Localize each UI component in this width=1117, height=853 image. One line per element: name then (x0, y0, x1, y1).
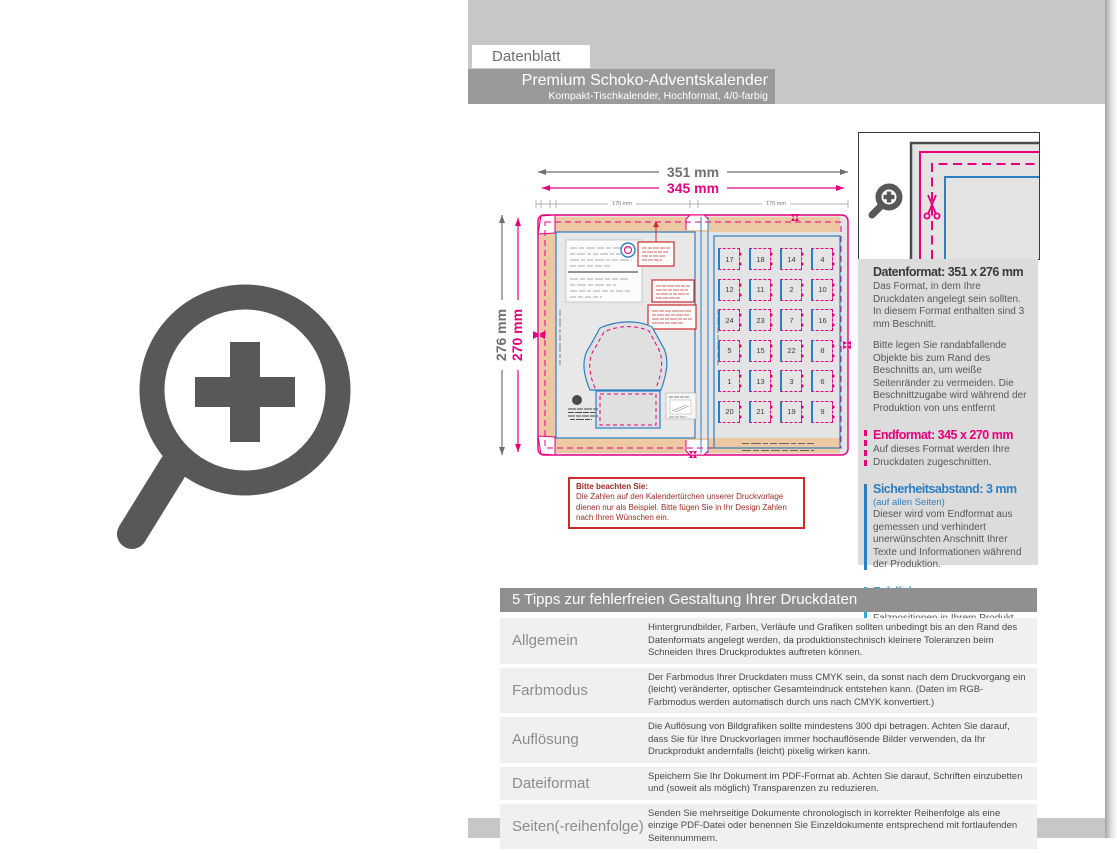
datenformat-body2: Bitte legen Sie randabfallende Objekte b… (873, 340, 1030, 415)
section-sicherheitsabstand: Sicherheitsabstand: 3 mm (auf allen Seit… (873, 482, 1030, 572)
tip-row-dateiformat: Dateiformat Speichern Sie Ihr Dokument i… (500, 767, 1037, 800)
calendar-door: 11 (749, 279, 771, 301)
info-panel: Datenformat: 351 x 276 mm Das Format, in… (858, 259, 1038, 565)
tip-row-aufloesung: Auflösung Die Auflösung von Bildgrafiken… (500, 717, 1037, 763)
corner-detail-box (858, 132, 1040, 260)
calendar-door: 23 (749, 309, 771, 331)
calendar-door: 19 (780, 401, 802, 423)
sicherheitsabstand-indicator-bar (864, 484, 867, 570)
section-datenformat: Datenformat: 351 x 276 mm Das Format, in… (873, 265, 1030, 415)
die-cut-diagram: 351 mm 345 mm 170 mm 170 mm 276 mm 270 m… (480, 160, 855, 515)
calendar-door: 18 (749, 248, 771, 270)
tips-table: 5 Tipps zur fehlerfreien Gestaltung Ihre… (500, 588, 1037, 853)
calendar-door: 17 (718, 248, 740, 270)
tip-label: Auflösung (500, 721, 648, 759)
tip-label: Seiten(-reihenfolge) (500, 808, 648, 846)
calendar-door: 9 (811, 401, 833, 423)
calendar-door: 21 (749, 401, 771, 423)
calendar-door: 10 (811, 279, 833, 301)
calendar-door: 24 (718, 309, 740, 331)
tip-row-farbmodus: Farbmodus Der Farbmodus Ihrer Druckdaten… (500, 668, 1037, 714)
magnifier-plus-small-icon (872, 187, 900, 216)
calendar-door: 7 (780, 309, 802, 331)
calendar-door: 12 (718, 279, 740, 301)
note-body: Die Zahlen auf den Kalendertürchen unser… (576, 492, 787, 522)
calendar-door: 20 (718, 401, 740, 423)
datenformat-body1: Das Format, in dem Ihre Druckdaten angel… (873, 281, 1030, 331)
calendar-door: 16 (811, 309, 833, 331)
datenformat-heading: Datenformat: 351 x 276 mm (873, 265, 1030, 279)
tip-row-allgemein: Allgemein Hintergrundbilder, Farben, Ver… (500, 618, 1037, 664)
calendar-door: 2 (780, 279, 802, 301)
calendar-door: 13 (749, 370, 771, 392)
tip-label: Allgemein (500, 622, 648, 660)
sicherheitsabstand-body: Dieser wird vom Endformat aus gemessen u… (873, 509, 1030, 572)
tip-text: Die Auflösung von Bildgrafiken sollte mi… (648, 721, 1037, 759)
sheet-shadow (1105, 0, 1117, 838)
tips-header: 5 Tipps zur fehlerfreien Gestaltung Ihre… (500, 588, 1037, 612)
calendar-door: 3 (780, 370, 802, 392)
note-title: Bitte beachten Sie: (576, 482, 648, 491)
tip-text: Der Farbmodus Ihrer Druckdaten muss CMYK… (648, 672, 1037, 710)
tip-label: Dateiformat (500, 771, 648, 796)
endformat-body: Auf dieses Format werden Ihre Druckdaten… (873, 444, 1030, 469)
sicherheitsabstand-heading: Sicherheitsabstand: 3 mm (873, 482, 1030, 496)
endformat-heading: Endformat: 345 x 270 mm (873, 428, 1030, 442)
calendar-door: 8 (811, 340, 833, 362)
tip-text: Hintergrundbilder, Farben, Verläufe und … (648, 622, 1037, 660)
corner-detail-diagram (859, 133, 1039, 259)
calendar-door: 15 (749, 340, 771, 362)
calendar-door: 22 (780, 340, 802, 362)
tip-label: Farbmodus (500, 672, 648, 710)
note-box: Bitte beachten Sie: Die Zahlen auf den K… (568, 477, 805, 529)
datenblatt-label: Datenblatt (472, 45, 590, 68)
magnifier-plus-icon (112, 278, 362, 563)
calendar-door: 4 (811, 248, 833, 270)
tip-text: Senden Sie mehrseitige Dokumente chronol… (648, 808, 1037, 846)
tip-text: Speichern Sie Ihr Dokument im PDF-Format… (648, 771, 1037, 796)
calendar-doors-grid: 171814412112102423716515228113362021199 (480, 160, 855, 515)
title-bar: Premium Schoko-Adventskalender Kompakt-T… (468, 69, 775, 104)
calendar-door: 1 (718, 370, 740, 392)
page-title: Premium Schoko-Adventskalender (468, 72, 768, 90)
page-subtitle: Kompakt-Tischkalender, Hochformat, 4/0-f… (468, 90, 768, 103)
sicherheitsabstand-subheading: (auf allen Seiten) (873, 497, 1030, 508)
tip-row-seitenreihenfolge: Seiten(-reihenfolge) Senden Sie mehrseit… (500, 804, 1037, 850)
calendar-door: 5 (718, 340, 740, 362)
section-endformat: Endformat: 345 x 270 mm Auf dieses Forma… (873, 428, 1030, 469)
calendar-door: 14 (780, 248, 802, 270)
endformat-indicator-bar (864, 430, 867, 467)
calendar-door: 6 (811, 370, 833, 392)
